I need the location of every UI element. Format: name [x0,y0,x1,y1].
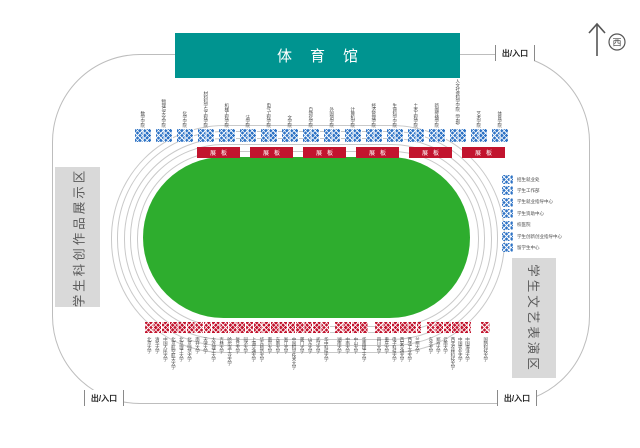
north-arrow-icon [589,24,605,56]
top-booth-box [198,129,215,142]
top-booth-label: 文学院 [287,115,292,127]
bottom-booth-strip [375,322,421,333]
bottom-booth-label: 南京大学 [267,337,272,353]
bottom-booth-label: 浙江大学 [283,337,288,353]
top-booth-box [366,129,383,142]
bottom-booth-label: 兰州大学 [415,337,420,353]
bottom-booth-label: 武汉大学 [315,337,320,353]
bottom-booth-label: 华南理工大学 [361,337,366,361]
top-booth-box [303,129,320,142]
right-booth-label: 招生就业处 [517,177,540,183]
gate-top-right: 出/入口 [495,45,535,61]
zone-label: 学生科创作品展示区 [68,167,87,307]
zone-science-display: 学生科创作品展示区 [55,167,100,307]
right-booth-box [502,198,513,207]
bottom-booth-label: 天津大学 [203,337,208,353]
top-booth-label: 土木工程学院 [413,103,418,127]
top-booth-label: 人文社会科学学院（学部） [455,79,460,127]
bottom-booth-label: 中国科学技术大学 [291,337,296,369]
bottom-booth-strip [481,322,490,333]
bottom-booth-label: 南开大学 [195,337,200,353]
stadium-map: 体育馆 西 出/入口 出/入口 出/入口 学生科创作品展示区 学生文艺表演区 数… [0,0,640,448]
top-booth-label: 计算机学院 [350,107,355,127]
display-board-label: 展板 [311,148,338,157]
top-booth-box [387,129,404,142]
display-board: 展板 [356,147,399,158]
top-booth-label: 材料科学与工程学院 [203,91,208,127]
gate-bottom-left: 出/入口 [84,390,124,406]
display-board-label: 展板 [417,148,444,157]
top-booth-box [429,129,446,142]
top-booth-box [345,129,362,142]
right-booth-box [502,209,513,218]
compass-direction: 西 [612,38,621,48]
top-booth-box [156,129,173,142]
right-booth-label: 学生就业指导中心 [517,199,553,205]
top-booth-label: 数学学院 [140,111,145,127]
display-board-label: 展板 [470,148,497,157]
bottom-booth-label: 中国人民大学 [163,337,168,361]
right-booth-label: 校医院 [517,222,531,228]
bottom-booth-label: 中山大学 [353,337,358,353]
bottom-booth-label: 东南大学 [275,337,280,353]
bottom-booth-label: 西北工业大学 [407,337,412,361]
bottom-booth-label: 清华大学 [155,337,160,353]
top-booth-label: 外国语学院 [329,107,334,127]
top-booth-label: 体育学院 [497,111,502,127]
display-board: 展板 [462,147,505,158]
top-booth-box [135,129,152,142]
top-booth-label: 法学院 [245,115,250,127]
right-booth-label: 留学生中心 [517,245,540,251]
bottom-booth-label: 湖南大学 [337,337,342,353]
bottom-booth-label: 同济大学 [243,337,248,353]
display-board: 展板 [409,147,452,158]
bottom-booth-label: 四川大学 [376,337,381,353]
bottom-booth-label: 北京航空航天大学 [171,337,176,369]
bottom-booth-label: 中南大学 [345,337,350,353]
display-board-label: 展板 [205,148,232,157]
bottom-booth-strip [335,322,368,333]
display-board-label: 展板 [364,148,391,157]
bottom-booth-label: 电子科技大学 [392,337,397,361]
display-board-label: 展板 [258,148,285,157]
top-booth-box [261,129,278,142]
right-booth-label: 学生工作部 [517,188,540,194]
gymnasium-label: 体育馆 [259,45,376,66]
display-board: 展板 [197,147,240,158]
display-board: 展板 [250,147,293,158]
bottom-booth-label: 山东大学 [307,337,312,353]
top-booth-box [219,129,236,142]
bottom-booth-label: 云南大学 [443,337,448,353]
top-booth-box [240,129,257,142]
bottom-booth-label: 西安交通大学 [399,337,404,361]
top-booth-label: 机械工程学院 [224,103,229,127]
zone-label: 学生文艺表演区 [525,264,544,373]
bottom-booth-strip [145,322,330,333]
right-booth-label: 学生资助中心 [517,211,544,217]
bottom-booth-label: 北京大学 [147,337,152,353]
bottom-booth-label: 国防科技大学 [483,337,488,361]
right-booth-box [502,221,513,230]
bottom-booth-label: 吉林大学 [219,337,224,353]
bottom-booth-label: 西北农林科技大学 [450,337,455,369]
right-booth-box [502,232,513,241]
top-booth-box [177,129,194,142]
bottom-booth-label: 哈尔滨工业大学 [227,337,232,365]
bottom-booth-strip [427,322,471,333]
top-booth-label: 经济管理学院 [371,103,376,127]
top-booth-box [471,129,488,142]
bottom-booth-label: 中国海洋大学 [465,337,470,361]
gate-label: 出/入口 [502,48,528,59]
top-booth-label: 新闻传播学院 [434,103,439,127]
bottom-booth-label: 北京师范大学 [187,337,192,361]
zone-art-performance: 学生文艺表演区 [512,258,556,378]
bottom-booth-label: 厦门大学 [299,337,304,353]
right-booth-box [502,186,513,195]
gate-label: 出/入口 [504,393,530,404]
bottom-booth-label: 重庆大学 [384,337,389,353]
top-booth-box [408,129,425,142]
bottom-booth-label: 华中科技大学 [323,337,328,361]
top-booth-label: 生命科学学院 [392,103,397,127]
gymnasium-banner: 体育馆 [175,33,460,78]
top-booth-box [282,129,299,142]
bottom-booth-label: 北京理工大学 [179,337,184,361]
top-booth-box [450,129,467,142]
top-booth-label: 自动化学院 [308,107,313,127]
right-booth-box [502,243,513,252]
right-booth-box [502,175,513,184]
top-booth-box [324,129,341,142]
display-board: 展板 [303,147,346,158]
gate-bottom-right: 出/入口 [497,390,537,406]
bottom-booth-label: 大连理工大学 [211,337,216,361]
top-booth-label: 电气工程学院 [266,103,271,127]
bottom-booth-label: 郑州大学 [436,337,441,353]
top-booth-label: 艺术学院 [476,111,481,127]
bottom-booth-label: 上海交通大学 [251,337,256,361]
top-booth-label: 物理与天文学院 [161,99,166,127]
top-booth-label: 化学学院 [182,111,187,127]
bottom-booth-label: 东北大学 [428,337,433,353]
infield [143,157,470,318]
bottom-booth-label: 华东师范大学 [259,337,264,361]
right-booth-label: 学生创新创业指导中心 [517,234,562,240]
bottom-booth-label: 中国农业大学 [458,337,463,361]
compass: 西 [584,18,630,60]
bottom-booth-label: 复旦大学 [235,337,240,353]
top-booth-box [492,129,509,142]
gate-label: 出/入口 [91,393,117,404]
